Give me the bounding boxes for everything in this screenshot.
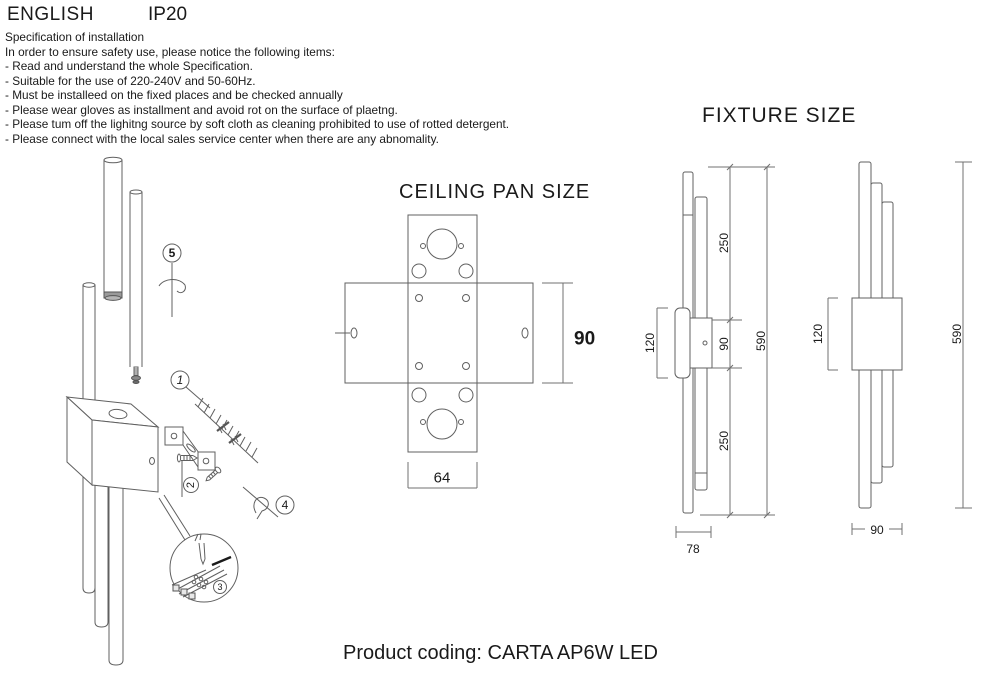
spec-title: Specification of installation <box>5 30 509 45</box>
callout-5: 5 <box>169 246 176 260</box>
spec-item: - Please connect with the local sales se… <box>5 132 509 147</box>
installation-diagram: 5 1 2 <box>60 145 310 670</box>
side-top-dim: 250 <box>717 233 731 253</box>
spec-item: - Must be installeed on the fixed places… <box>5 88 509 103</box>
spec-item: - Read and understand the whole Specific… <box>5 59 509 74</box>
front-overall-dim: 590 <box>950 324 964 344</box>
ceiling-pan-drawing: 90 64 <box>335 210 597 495</box>
side-depth-dim: 78 <box>686 542 700 556</box>
spec-intro: In order to ensure safety use, please no… <box>5 45 509 60</box>
front-block-dim: 120 <box>811 324 825 344</box>
ceiling-pan-size-title: CEILING PAN SIZE <box>399 181 590 204</box>
fixture-size-title: FIXTURE SIZE <box>702 104 856 128</box>
spec-sheet-page: ENGLISH IP20 Specification of installati… <box>0 0 1000 690</box>
callout-4: 4 <box>282 498 289 512</box>
ip-rating-label: IP20 <box>148 4 187 26</box>
callout-1: 1 <box>177 373 184 387</box>
spec-item: - Please wear gloves as installment and … <box>5 103 509 118</box>
side-overall-dim: 590 <box>754 331 768 351</box>
side-mid-dim: 90 <box>717 337 731 351</box>
side-block-dim: 120 <box>643 333 657 353</box>
product-coding: Product coding: CARTA AP6W LED <box>343 642 658 665</box>
spec-item: - Please tum off the lighitng source by … <box>5 117 509 132</box>
callout-2: 2 <box>185 482 197 488</box>
spec-item: - Suitable for the use of 220-240V and 5… <box>5 74 509 89</box>
ceiling-pan-height-dim: 90 <box>574 329 595 350</box>
language-label: ENGLISH <box>7 4 94 26</box>
side-bottom-dim: 250 <box>717 431 731 451</box>
ceiling-pan-width-dim: 64 <box>434 470 451 487</box>
front-width-dim: 90 <box>870 523 884 537</box>
fixture-side-drawing: 120 250 90 250 590 78 <box>640 155 790 555</box>
specification-text: Specification of installation In order t… <box>5 30 509 146</box>
callout-3: 3 <box>217 582 222 592</box>
fixture-front-drawing: 120 590 90 <box>808 150 973 555</box>
